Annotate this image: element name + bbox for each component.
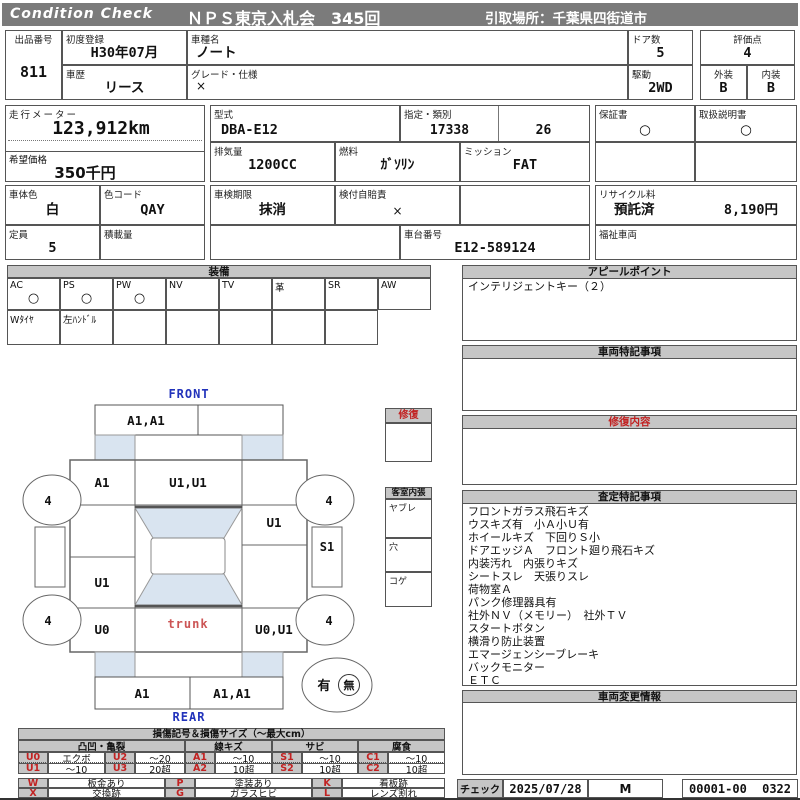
exterior-grade-value: B	[701, 80, 746, 96]
warranty-empty-cell	[595, 142, 695, 182]
front-right-wheel-depth: 4	[325, 494, 332, 508]
odometer-price-cell: 走行メーター 123,912km 希望価格 350千円	[5, 105, 205, 182]
chassis-value: E12-589124	[401, 240, 589, 256]
legend-code: W	[18, 778, 48, 788]
drive-label: 駆動	[632, 67, 651, 81]
appeal-title-bar: アピールポイント	[462, 265, 797, 279]
capacity-label: 定員	[9, 227, 28, 241]
cabin-row-hole: 穴	[385, 538, 432, 572]
left-rear-door-code: U1	[94, 575, 109, 590]
warranty-mark: ○	[596, 122, 694, 138]
equipment-label: AW	[381, 280, 396, 291]
assessment-line: 社外ＮＶ（メモリー） 社外ＴＶ	[468, 609, 791, 622]
legend-value: 交換跡	[48, 788, 165, 798]
equipment-extra-row: Wﾀｲﾔ 左ﾊﾝﾄﾞﾙ	[7, 310, 378, 345]
insurance-empty-cell	[460, 185, 590, 225]
front-left-wheel-depth: 4	[44, 494, 51, 508]
equipment-label: AC	[10, 280, 23, 291]
right-quarter-code: U0,U1	[255, 622, 293, 637]
score-label: 評価点	[701, 32, 794, 46]
history-cell: 車歴 リース	[62, 65, 187, 100]
front-label: FRONT	[168, 388, 209, 401]
left-sill	[35, 527, 65, 587]
transmission-label: ミッション	[464, 144, 512, 158]
insurance-cell: 検付自賠責 ×	[335, 185, 460, 225]
changes-body	[462, 703, 797, 775]
legend-row-2: U1 ～10 U3 20超 A2 10超 S2 10超 C2 10超	[18, 763, 445, 774]
circle-mark: ○	[8, 291, 59, 306]
legend-value: レンズ割れ	[342, 788, 445, 798]
legend-group: 腐食	[358, 740, 445, 752]
pickup-location: 引取場所：千葉県四街道市	[485, 7, 647, 27]
assessment-line: 荷物室Ａ	[468, 583, 791, 596]
interior-grade-label: 内装	[748, 67, 794, 81]
lot-number-label: 出品番号	[6, 32, 61, 46]
left-c-pillar	[95, 652, 135, 677]
fuel-cell: 燃料 ｶﾞｿﾘﾝ	[335, 142, 460, 182]
assessment-line: エマージェンシーブレーキ	[468, 648, 791, 661]
left-a-pillar	[95, 435, 135, 460]
doors-label: ドア数	[632, 32, 661, 46]
doors-value: 5	[629, 45, 692, 61]
equipment-cell-sr: SR	[325, 278, 378, 310]
equipment-cell-aw: AW	[378, 278, 431, 310]
notes-body	[462, 359, 797, 411]
body-color-cell: 車体色 白	[5, 185, 100, 225]
manual-mark: ○	[696, 122, 796, 138]
grade-spec-value: ×	[196, 79, 206, 93]
first-registration-value: H30年07月	[63, 41, 186, 61]
repair-title-bar: 修復内容	[462, 415, 797, 429]
odometer-value: 123,912km	[6, 118, 196, 139]
rear-bumper	[95, 677, 283, 709]
equipment-label: PS	[63, 280, 75, 291]
insurance-label: 検付自賠責	[339, 187, 387, 201]
equipment-label: PW	[116, 280, 131, 291]
legend-code: A1	[185, 752, 215, 763]
legend-value: 10超	[302, 763, 358, 774]
rear-left-wheel	[23, 595, 81, 645]
rear-window	[135, 574, 242, 605]
record-book-ellipse	[302, 658, 372, 712]
equipment-label: SR	[328, 280, 341, 291]
legend-code: A2	[185, 763, 215, 774]
type-cell: 指定・類別 17338 26	[400, 105, 590, 142]
drive-cell: 駆動 2WD	[628, 65, 693, 100]
legend-code: U1	[18, 763, 48, 774]
equipment-cell-ps: PS ○	[60, 278, 113, 310]
inspector-initial: M	[588, 779, 663, 798]
transmission-cell: ミッション FAT	[460, 142, 590, 182]
fuel-value: ｶﾞｿﾘﾝ	[336, 153, 459, 173]
right-sill-code: S1	[320, 540, 334, 554]
sheet-code-cell: 00001-00 0322	[682, 779, 798, 798]
legend-code: G	[165, 788, 195, 798]
sheet-code-left: 00001-00	[689, 782, 747, 796]
warranty-label: 保証書	[599, 107, 628, 121]
score-value: 4	[701, 45, 794, 61]
divider	[8, 140, 202, 141]
legend-code: U0	[18, 752, 48, 763]
interior-grade-cell: 内装 B	[747, 65, 795, 100]
legend-code: S2	[272, 763, 302, 774]
rear-left-wheel-depth: 4	[44, 614, 51, 628]
record-book-yes: 有	[317, 678, 330, 694]
history-value: リース	[63, 76, 186, 96]
assessment-line: バックモニター	[468, 661, 791, 674]
capacity-cell: 定員 5	[5, 225, 100, 260]
assessment-line: 横滑り防止装置	[468, 635, 791, 648]
brand-title: Condition Check	[10, 6, 153, 22]
equipment-extra-label: 左ﾊﾝﾄﾞﾙ	[63, 312, 96, 326]
welfare-cell: 福祉車両	[595, 225, 797, 260]
legend-group: 線キズ	[185, 740, 272, 752]
inspection-value: 抹消	[211, 198, 334, 218]
recycle-cell: リサイクル料 預託済 8,190円	[595, 185, 797, 225]
front-bumper-left-code: A1,A1	[127, 413, 165, 428]
exterior-grade-cell: 外装 B	[700, 65, 747, 100]
right-c-pillar	[242, 652, 283, 677]
roof-panel	[151, 538, 225, 574]
equipment-label: NV	[169, 280, 183, 291]
assessment-line: ウスキズ有 小Ａ小Ｕ有	[468, 518, 791, 531]
notes-title-bar: 車両特記事項	[462, 345, 797, 359]
rear-label: REAR	[173, 710, 206, 724]
equipment-cell-pw: PW ○	[113, 278, 166, 310]
appeal-body: インテリジェントキー（２）	[462, 279, 797, 341]
type-label: 指定・類別	[404, 107, 452, 121]
color-code-cell: 色コード QAY	[100, 185, 205, 225]
legend-value: 20超	[135, 763, 185, 774]
model-code-value: DBA-E12	[221, 122, 399, 138]
check-row: チェック 2025/07/28 M	[457, 779, 663, 798]
equipment-title-bar: 装備	[7, 265, 431, 278]
exterior-grade-label: 外装	[701, 67, 746, 81]
assessment-line: ドアエッジＡ フロント廻り飛石キズ	[468, 544, 791, 557]
displacement-cell: 排気量 1200CC	[210, 142, 335, 182]
right-front-door-code: U1	[266, 515, 281, 530]
rear-right-wheel-depth: 4	[325, 614, 332, 628]
cabin-row-label: コゲ	[389, 574, 407, 587]
repair-mini-body	[385, 423, 432, 462]
legend-code: S1	[272, 752, 302, 763]
grade-spec-cell: グレード・仕様 ×	[187, 65, 628, 100]
legend-code: U2	[105, 752, 135, 763]
equipment-label: 革	[275, 280, 285, 294]
equipment-label: TV	[222, 280, 234, 291]
score-cell: 評価点 4	[700, 30, 795, 65]
color-code-value: QAY	[101, 202, 204, 218]
car-damage-diagram: FRONT A1,A1 A1 U1,U1 U1 U1 U0 trunk U0,U…	[10, 388, 385, 728]
sheet-code-right: 0322	[762, 782, 791, 796]
header-bar: Condition Check ＮＰＳ東京入札会 345回 引取場所：千葉県四街…	[2, 3, 798, 26]
assessment-line: フロントガラス飛石キズ	[468, 505, 791, 518]
load-cell: 積載量	[100, 225, 205, 260]
legend-value: 10超	[388, 763, 445, 774]
inspection-cell: 車検期限 抹消	[210, 185, 335, 225]
manual-empty-cell	[695, 142, 797, 182]
legend-code: P	[165, 778, 195, 788]
warranty-cell: 保証書 ○	[595, 105, 695, 142]
front-bumper	[95, 405, 283, 435]
first-registration-cell: 初度登録 H30年07月	[62, 30, 187, 65]
cabin-lining-title: 客室内張	[385, 487, 432, 499]
legend-code: K	[312, 778, 342, 788]
assessment-line: 内装汚れ 内張りキズ	[468, 557, 791, 570]
repair-mini-title: 修復	[385, 408, 432, 423]
legend-code: X	[18, 788, 48, 798]
cabin-row-tear: ヤブレ	[385, 499, 432, 538]
capacity-value: 5	[6, 240, 99, 256]
displacement-value: 1200CC	[211, 157, 334, 173]
check-date: 2025/07/28	[503, 779, 588, 798]
record-book-no: 無	[344, 678, 355, 692]
drive-value: 2WD	[629, 80, 692, 96]
windshield	[135, 508, 242, 538]
legend-value: ガラスヒビ	[195, 788, 312, 798]
assessment-title-bar: 査定特記事項	[462, 490, 797, 504]
lower-empty-cell	[210, 225, 400, 260]
cabin-row-label: ヤブレ	[389, 501, 416, 514]
doors-cell: ドア数 5	[628, 30, 693, 65]
type-class-value: 26	[498, 123, 589, 138]
circle-mark: ○	[61, 291, 112, 306]
trunk-label: trunk	[167, 617, 208, 631]
type-number-value: 17338	[401, 123, 498, 138]
equipment-cell-ac: AC ○	[7, 278, 60, 310]
equipment-cell-nv: NV	[166, 278, 219, 310]
legend-code: C2	[358, 763, 388, 774]
load-label: 積載量	[104, 227, 133, 241]
equipment-extra-label: Wﾀｲﾔ	[10, 312, 34, 326]
interior-grade-value: B	[748, 80, 794, 96]
right-sill	[312, 527, 342, 587]
assessment-line: パンク修理器具有	[468, 596, 791, 609]
lot-number-cell: 出品番号 811	[5, 30, 62, 100]
assessment-line: シートスレ 天張りスレ	[468, 570, 791, 583]
price-value: 350千円	[6, 162, 164, 183]
legend-code: C1	[358, 752, 388, 763]
left-quarter-code: U0	[94, 622, 109, 637]
changes-title-bar: 車両変更情報	[462, 690, 797, 703]
condition-check-sheet: Condition Check ＮＰＳ東京入札会 345回 引取場所：千葉県四街…	[0, 0, 800, 800]
repair-body	[462, 429, 797, 485]
insurance-value: ×	[336, 204, 459, 218]
legend-value: 10超	[215, 763, 272, 774]
circle-mark: ○	[114, 291, 165, 306]
recycle-fee-value: 8,190円	[724, 198, 778, 218]
equipment-cell-leather: 革	[272, 278, 325, 310]
recycle-status-value: 預託済	[614, 198, 655, 218]
manual-cell: 取扱説明書 ○	[695, 105, 797, 142]
model-code-label: 型式	[214, 107, 233, 121]
front-left-wheel	[23, 475, 81, 525]
model-value: ノート	[196, 41, 627, 61]
assessment-line: ＥＴＣ	[468, 674, 791, 687]
left-fender-code: A1	[94, 475, 109, 490]
cabin-row-burn: コゲ	[385, 572, 432, 607]
body-color-value: 白	[6, 198, 99, 218]
model-cell: 車種名 ノート	[187, 30, 628, 65]
assessment-line: ホイールキズ 下回りＳ小	[468, 531, 791, 544]
cabin-row-label: 穴	[389, 540, 398, 553]
legend-value: ～10	[48, 763, 105, 774]
rear-bumper-right-code: A1,A1	[213, 686, 251, 701]
appeal-line: インテリジェントキー（２）	[468, 280, 791, 293]
legend-group: サビ	[272, 740, 358, 752]
hood-roof-code: U1,U1	[169, 475, 207, 490]
assessment-line: スタートボタン	[468, 622, 791, 635]
legend-row-4: X 交換跡 G ガラスヒビ L レンズ割れ	[18, 788, 445, 798]
check-label: チェック	[457, 779, 503, 798]
lot-number-value: 811	[6, 63, 61, 81]
equipment-cell-tv: TV	[219, 278, 272, 310]
right-a-pillar	[242, 435, 283, 460]
equipment-row: AC ○ PS ○ PW ○ NV TV 革 SR AW	[7, 278, 431, 310]
assessment-body: フロントガラス飛石キズ ウスキズ有 小Ａ小Ｕ有 ホイールキズ 下回りＳ小 ドアエ…	[462, 504, 797, 686]
chassis-cell: 車台番号 E12-589124	[400, 225, 590, 260]
transmission-value: FAT	[461, 157, 589, 173]
auction-title: ＮＰＳ東京入札会 345回	[187, 5, 380, 29]
manual-label: 取扱説明書	[699, 107, 747, 121]
rear-bumper-left-code: A1	[134, 686, 149, 701]
chassis-label: 車台番号	[404, 227, 442, 241]
legend-code: U3	[105, 763, 135, 774]
model-code-cell: 型式 DBA-E12	[210, 105, 400, 142]
welfare-label: 福祉車両	[599, 227, 637, 241]
color-code-label: 色コード	[104, 187, 142, 201]
legend-code: L	[312, 788, 342, 798]
displacement-label: 排気量	[214, 144, 243, 158]
